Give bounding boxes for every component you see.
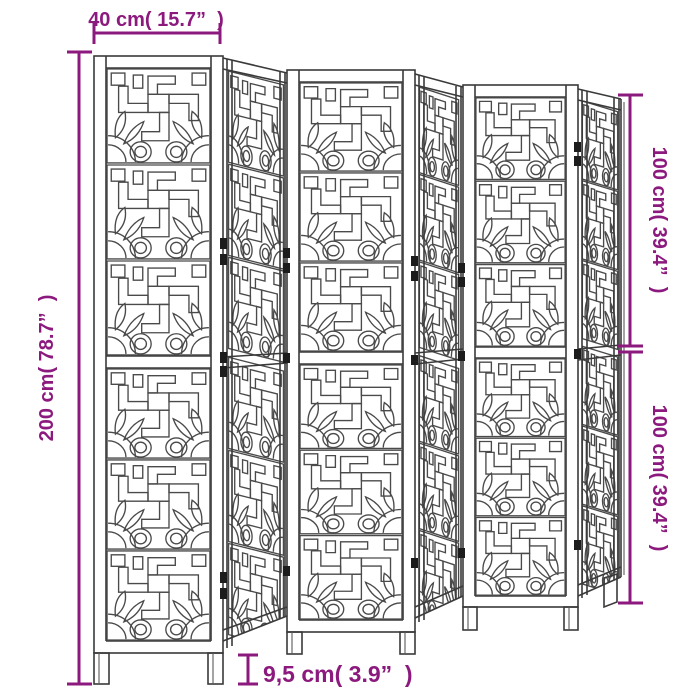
- dimension-leg-height: 9,5 cm( 3.9” ): [238, 655, 413, 687]
- dimension-panel-width: 40 cm( 15.7” ): [88, 9, 224, 44]
- panel-width-label: 40 cm( 15.7” ): [88, 9, 224, 31]
- dimension-upper-height: 100 cm( 39.4” ): [618, 95, 670, 346]
- leg-height-label: 9,5 cm( 3.9” ): [263, 661, 413, 687]
- lower-height-label: 100 cm( 39.4” ): [648, 405, 670, 552]
- panel-4: [415, 74, 463, 629]
- upper-height-label: 100 cm( 39.4” ): [648, 147, 670, 294]
- total-height-label: 200 cm( 78.7” ): [36, 295, 58, 442]
- panel-2: [223, 58, 287, 648]
- panel-1: [94, 56, 223, 684]
- diagram-canvas: 40 cm( 15.7” ) 200 cm( 78.7” ) 100 cm( 3…: [0, 0, 700, 700]
- panel-5: [463, 85, 578, 630]
- dimension-lower-height: 100 cm( 39.4” ): [618, 352, 670, 603]
- room-divider-diagram: 40 cm( 15.7” ) 200 cm( 78.7” ) 100 cm( 3…: [0, 0, 700, 700]
- panel-3: [287, 70, 415, 654]
- panel-6: [578, 89, 624, 607]
- dimension-total-height: 200 cm( 78.7” ): [36, 52, 92, 684]
